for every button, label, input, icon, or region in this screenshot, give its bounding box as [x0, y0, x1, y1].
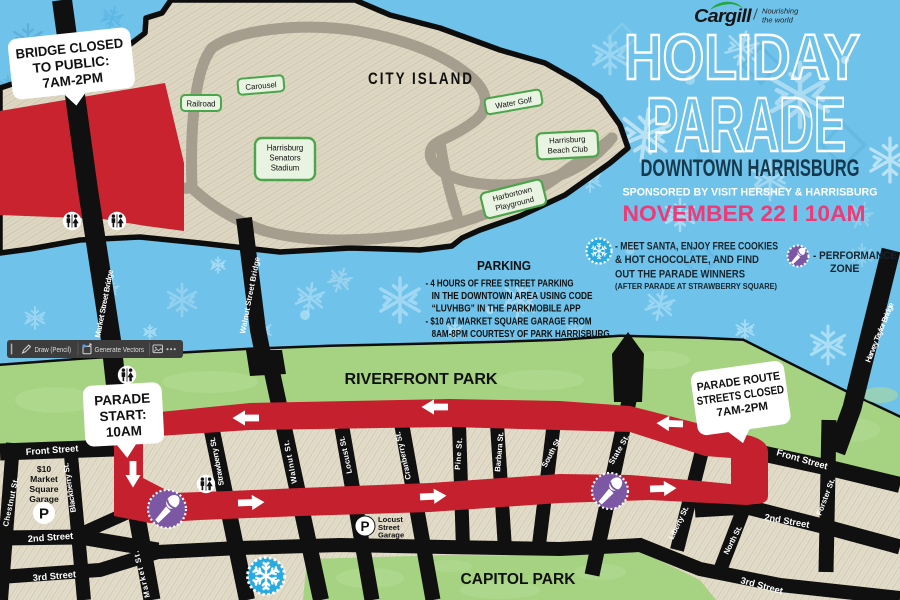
- svg-text:& HOT CHOCOLATE, AND FIND: & HOT CHOCOLATE, AND FIND: [615, 254, 759, 266]
- svg-text:Square: Square: [29, 484, 58, 494]
- svg-text:ZONE: ZONE: [830, 263, 859, 275]
- svg-text:Market: Market: [30, 474, 58, 484]
- svg-text:OUT THE PARADE WINNERS: OUT THE PARADE WINNERS: [615, 269, 745, 281]
- svg-text:NOVEMBER 22 I 10AM: NOVEMBER 22 I 10AM: [623, 201, 866, 226]
- svg-text:Stadium: Stadium: [271, 164, 300, 173]
- svg-text:Draw (Pencil): Draw (Pencil): [35, 345, 72, 354]
- svg-text:Garage: Garage: [378, 531, 404, 540]
- svg-text:Railroad: Railroad: [186, 100, 215, 109]
- svg-text:- MEET SANTA, ENJOY FREE COOKI: - MEET SANTA, ENJOY FREE COOKIES: [615, 241, 778, 253]
- svg-text:$10: $10: [37, 464, 52, 474]
- svg-text:CITY ISLAND: CITY ISLAND: [368, 69, 474, 88]
- svg-text:P: P: [39, 506, 49, 523]
- svg-text:- $10 AT MARKET SQUARE GARAGE: - $10 AT MARKET SQUARE GARAGE FROM: [426, 317, 592, 328]
- svg-text:START:: START:: [99, 407, 147, 424]
- svg-text:Harrisburg: Harrisburg: [549, 135, 586, 146]
- svg-text:RIVERFRONT PARK: RIVERFRONT PARK: [345, 371, 498, 388]
- svg-text:DOWNTOWN HARRISBURG: DOWNTOWN HARRISBURG: [641, 155, 860, 182]
- svg-text:PARKING: PARKING: [477, 258, 531, 273]
- svg-text:SPONSORED BY VISIT HERSHEY & H: SPONSORED BY VISIT HERSHEY & HARRISBURG: [623, 187, 878, 199]
- svg-text:CAPITOL PARK: CAPITOL PARK: [461, 571, 576, 588]
- svg-text:10AM: 10AM: [105, 423, 142, 440]
- svg-text:Nourishing: Nourishing: [762, 7, 799, 16]
- svg-text:Generate Vectors: Generate Vectors: [95, 345, 145, 354]
- svg-text:- PERFORMANCE: - PERFORMANCE: [813, 250, 897, 262]
- svg-text:PARADE: PARADE: [94, 391, 151, 409]
- svg-text:IN THE DOWNTOWN AREA USING COD: IN THE DOWNTOWN AREA USING CODE: [432, 291, 593, 302]
- svg-text:Senators: Senators: [269, 154, 300, 163]
- svg-text:(AFTER PARADE AT STRAWBERRY SQ: (AFTER PARADE AT STRAWBERRY SQUARE): [615, 282, 777, 291]
- svg-text:- 4 HOURS OF FREE STREET PARKI: - 4 HOURS OF FREE STREET PARKING: [426, 279, 574, 290]
- svg-text:P: P: [360, 519, 369, 534]
- svg-text:Harrisburg: Harrisburg: [267, 144, 303, 153]
- svg-text:8AM-8PM COURTESY OF PARK HARRI: 8AM-8PM COURTESY OF PARK HARRISBURG: [432, 329, 610, 340]
- svg-text:“LUVHBG” IN THE PARKMOBILE APP: “LUVHBG” IN THE PARKMOBILE APP: [432, 304, 581, 315]
